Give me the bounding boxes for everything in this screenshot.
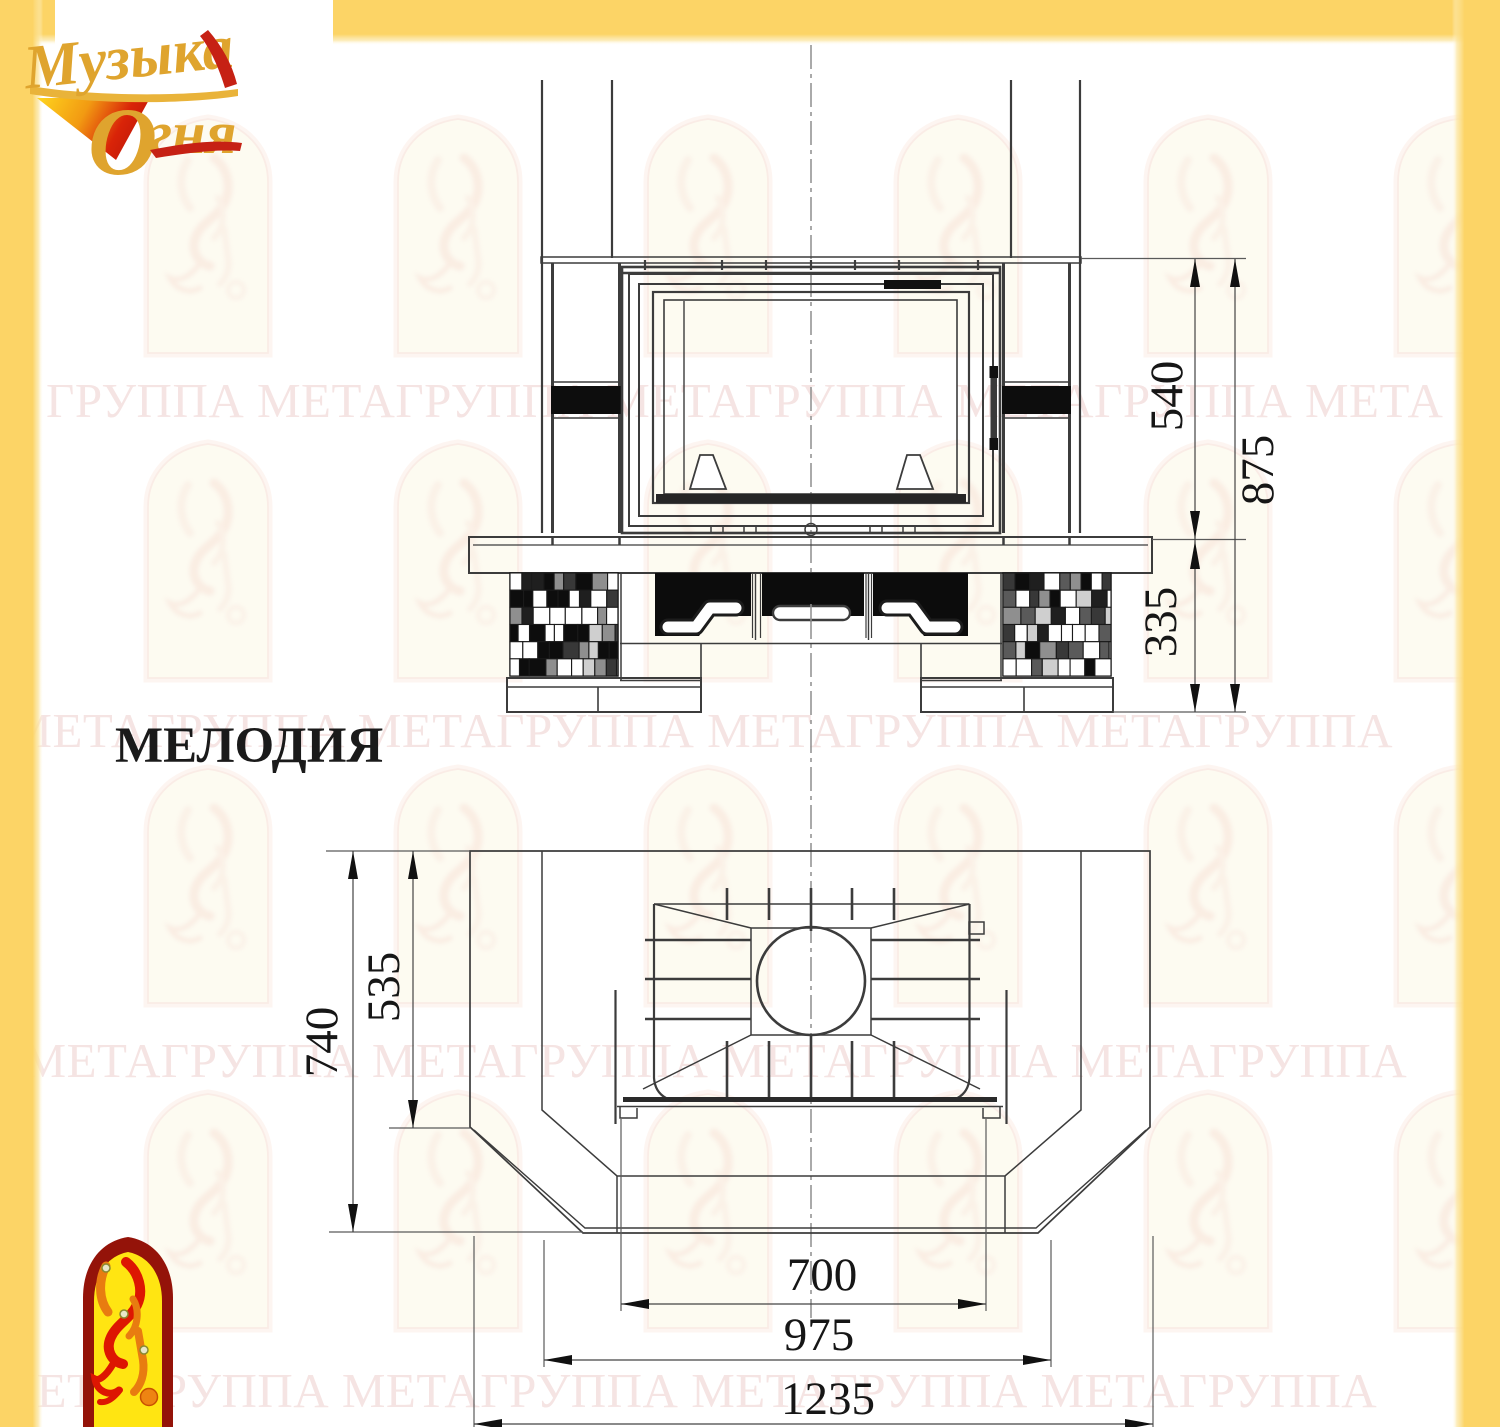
svg-text:740: 740 xyxy=(296,1007,348,1078)
svg-text:ПА МЕТАГРУППА МЕТАГРУППА МЕТАГ: ПА МЕТАГРУППА МЕТАГРУППА МЕТАГРУППА МЕТА… xyxy=(0,1033,1407,1088)
svg-text:О: О xyxy=(88,88,157,195)
svg-text:ГРУППА МЕТАГРУППА МЕТАГРУППА М: ГРУППА МЕТАГРУППА МЕТАГРУППА МЕТАГРУППА … xyxy=(46,373,1443,428)
svg-text:МЕЛОДИЯ: МЕЛОДИЯ xyxy=(115,718,383,774)
svg-text:540: 540 xyxy=(1141,361,1193,432)
svg-text:ПА МЕТАГРУППА МЕТАГРУППА МЕТАГ: ПА МЕТАГРУППА МЕТАГРУППА МЕТАГРУППА МЕТА… xyxy=(0,1363,1377,1418)
svg-text:975: 975 xyxy=(784,1309,855,1361)
svg-text:700: 700 xyxy=(787,1249,858,1301)
svg-text:535: 535 xyxy=(358,952,410,1023)
svg-text:1235: 1235 xyxy=(781,1373,875,1425)
svg-text:875: 875 xyxy=(1232,435,1284,506)
svg-text:335: 335 xyxy=(1135,587,1187,658)
